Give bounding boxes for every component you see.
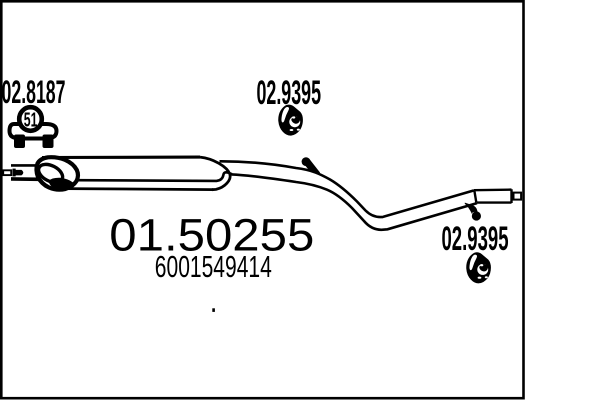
svg-text:6001549414: 6001549414 [155, 249, 272, 284]
svg-text:02.9395: 02.9395 [442, 220, 509, 258]
svg-text:02.8187: 02.8187 [2, 74, 66, 110]
svg-text:51: 51 [24, 109, 38, 132]
